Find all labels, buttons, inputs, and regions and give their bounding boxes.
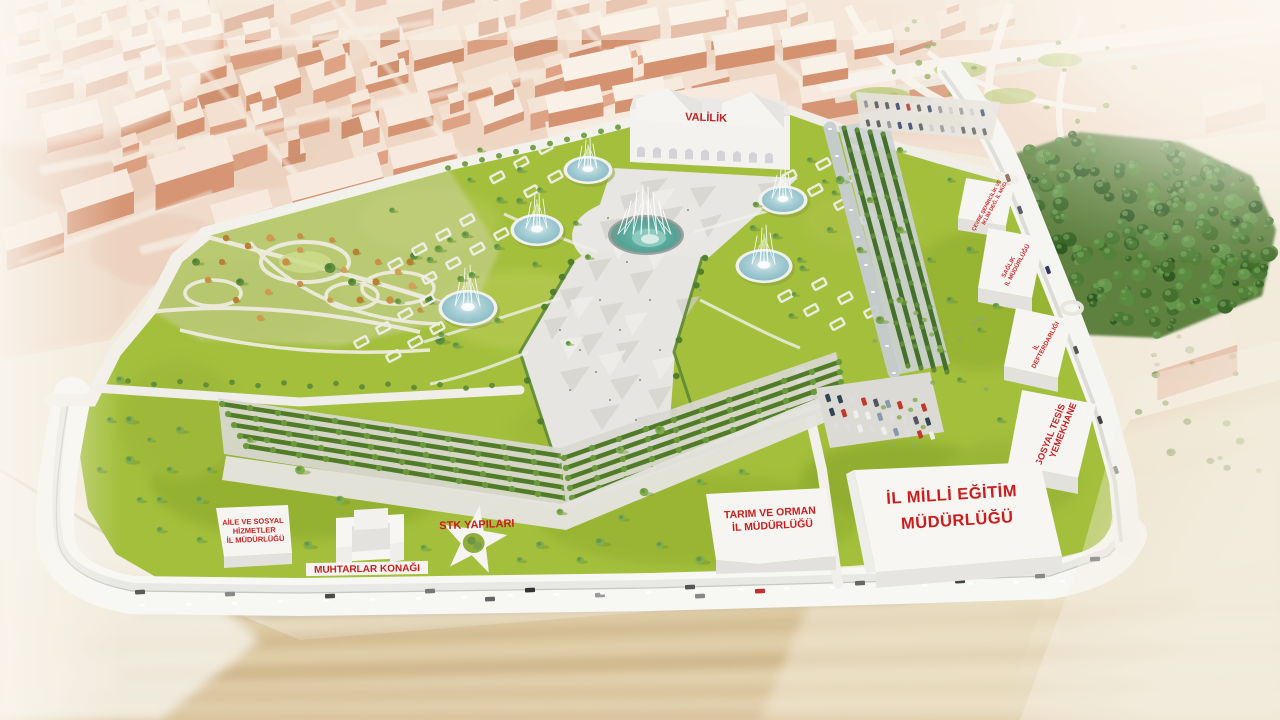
svg-text:TARIM VE ORMANİL MÜDÜRLÜĞÜ: TARIM VE ORMANİL MÜDÜRLÜĞÜ: [724, 505, 817, 535]
svg-text:VALİLİK: VALİLİK: [685, 110, 727, 124]
